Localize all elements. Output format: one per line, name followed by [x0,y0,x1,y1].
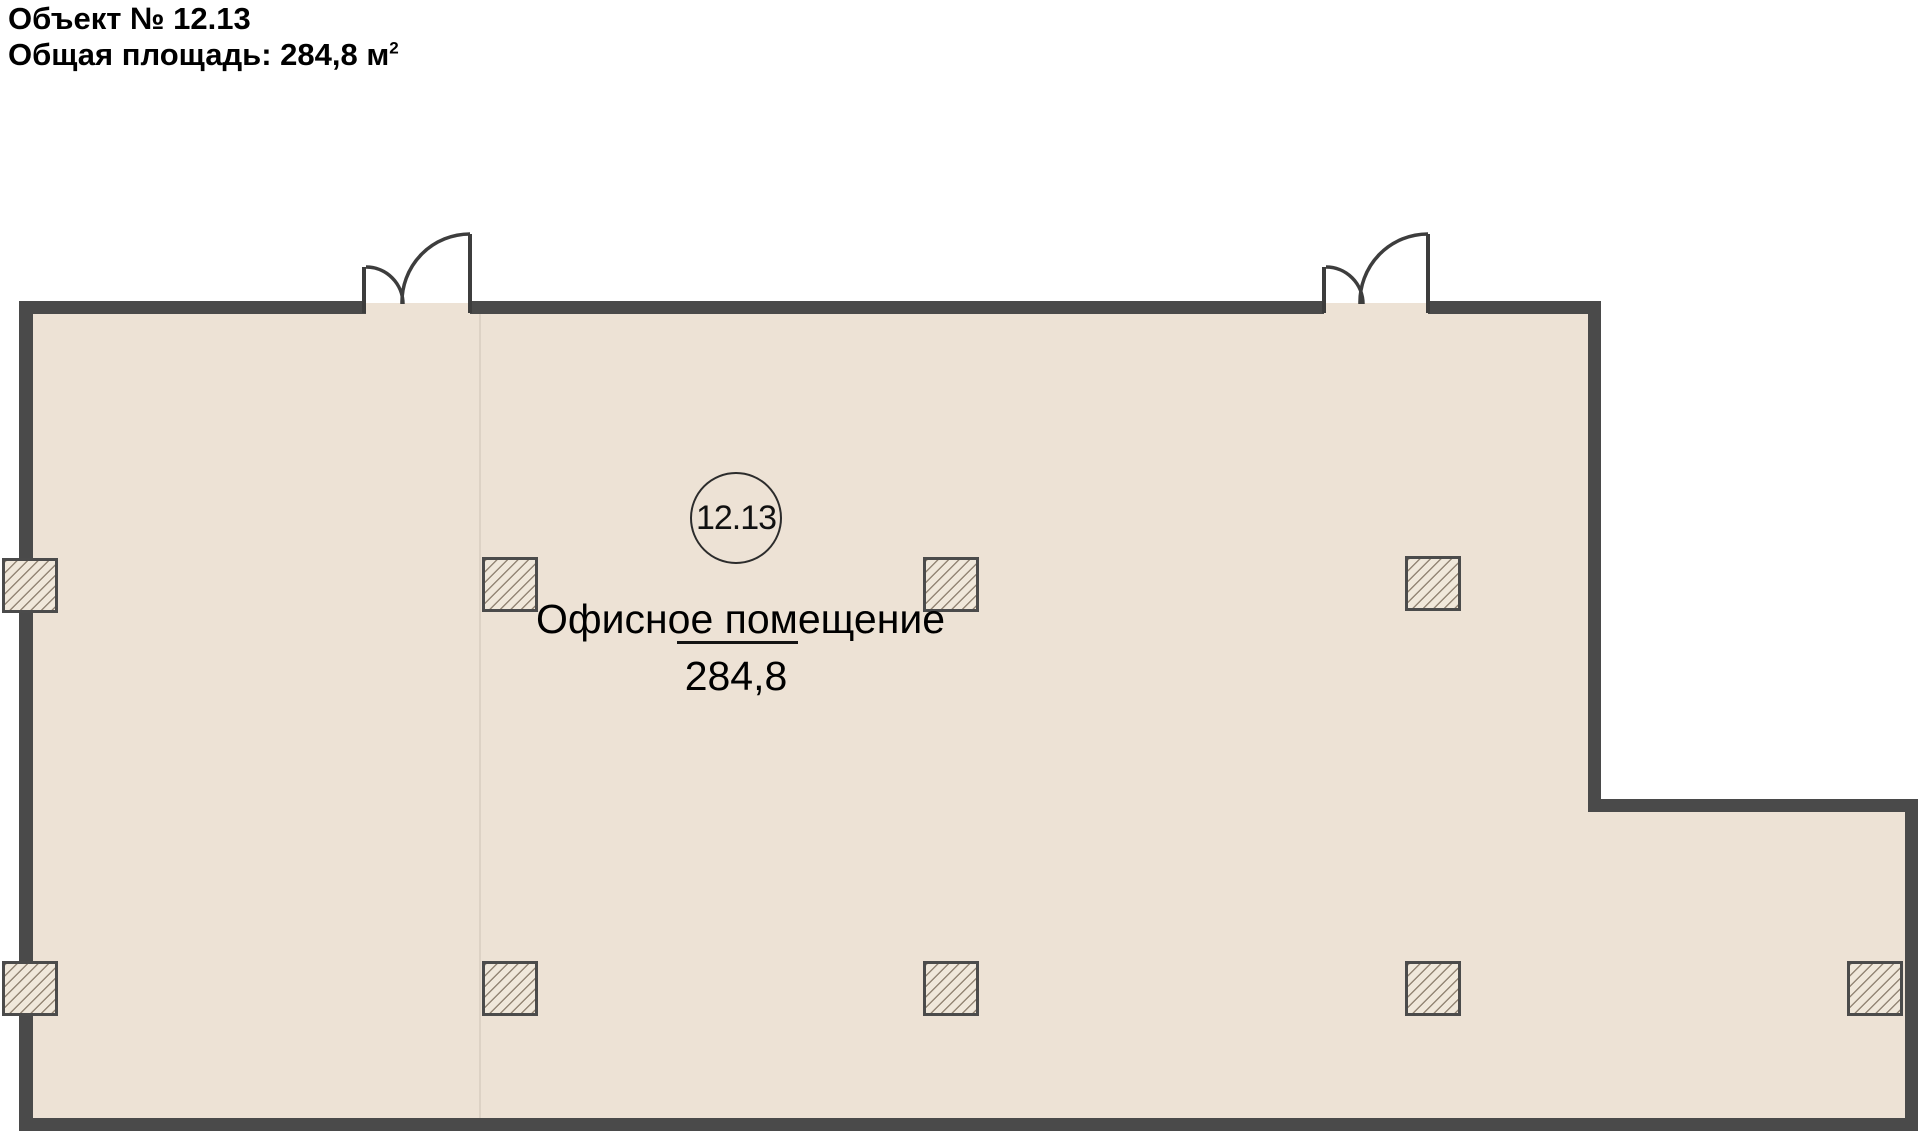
double-door-right [1324,234,1428,313]
entrance-doors [0,228,1920,316]
column-hatched [923,961,979,1016]
column-hatched [1405,961,1461,1016]
column-hatched [1847,961,1903,1016]
room-name-label: Офисное помещение [536,596,936,643]
wall-right-main [1588,301,1601,812]
total-area-label: Общая площадь: 284,8 м [8,37,389,72]
total-area: Общая площадь: 284,8 м2 [8,37,399,73]
door-swing-arc-small [366,267,403,304]
wall-bottom [19,1118,1918,1131]
room-area-value: 284,8 [636,653,836,700]
floor-area-main [33,313,1589,1118]
floor-plan-canvas: Объект № 12.13 Общая площадь: 284,8 м2 [0,0,1920,1131]
column-hatched [2,558,58,613]
room-area-divider-line [677,641,798,644]
column-hatched [482,557,538,612]
plan-header: Объект № 12.13 Общая площадь: 284,8 м2 [8,1,399,73]
door-swing-arc-large [402,234,470,304]
room-number: 12.13 [696,499,776,538]
column-hatched [1405,556,1461,611]
wall-extension-right [1905,799,1918,1131]
door-swing-arc-small [1326,267,1363,304]
door-swing-arc-large [1360,234,1428,304]
wall-step-horizontal [1588,799,1918,812]
room-number-badge: 12.13 [690,472,782,564]
object-title: Объект № 12.13 [8,1,399,37]
partition-line [479,314,481,1118]
column-hatched [482,961,538,1016]
total-area-superscript: 2 [389,39,398,58]
column-hatched [2,961,58,1016]
double-door-left [364,234,470,313]
